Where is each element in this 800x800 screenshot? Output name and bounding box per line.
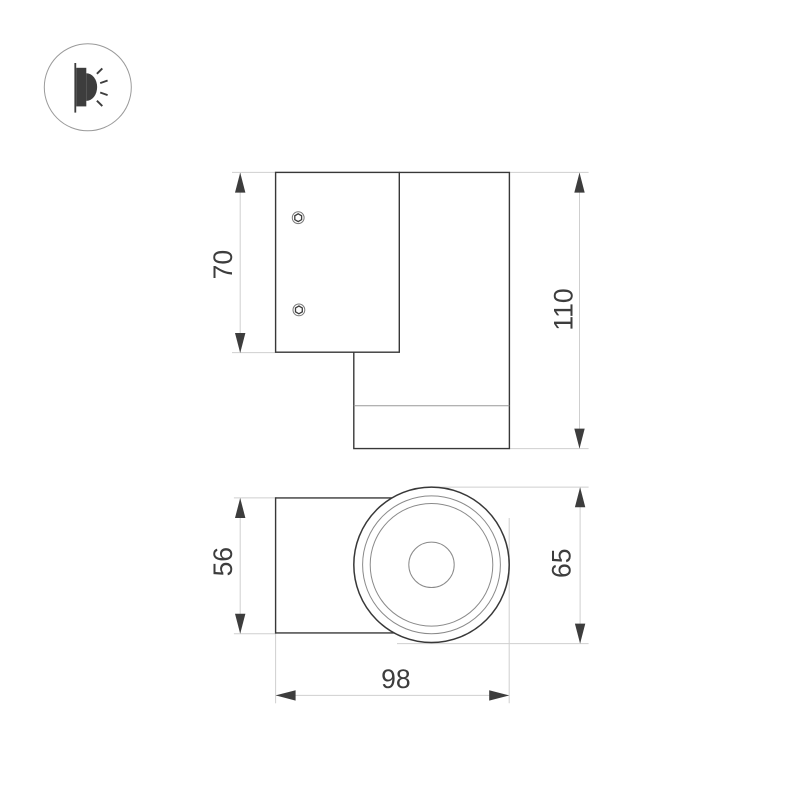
svg-text:70: 70 <box>208 250 238 279</box>
svg-text:110: 110 <box>548 288 578 330</box>
svg-text:98: 98 <box>381 664 410 694</box>
svg-text:65: 65 <box>547 549 577 578</box>
svg-text:56: 56 <box>208 547 238 576</box>
